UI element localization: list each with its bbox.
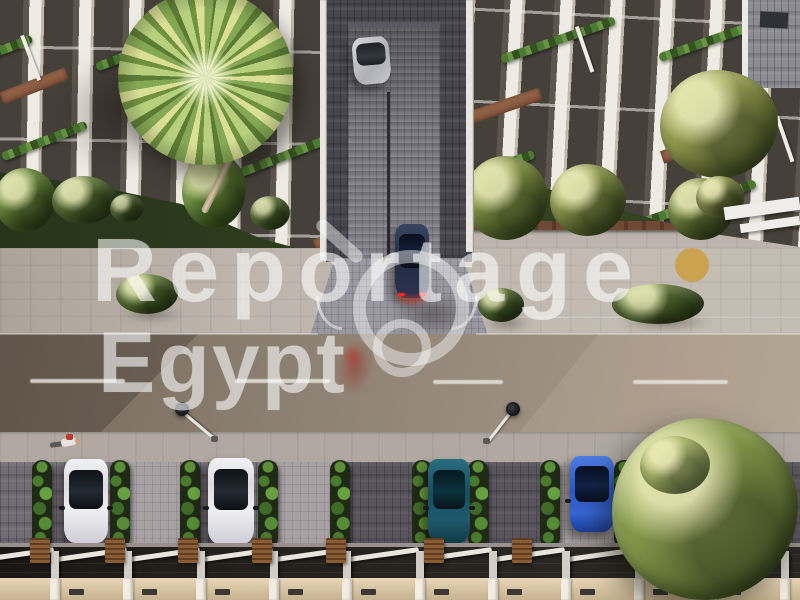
car-teal	[428, 459, 470, 543]
hedge-planter	[330, 460, 350, 548]
wall-pilaster	[50, 578, 60, 600]
car-glass	[214, 469, 249, 509]
bench	[252, 538, 272, 563]
car-silver	[351, 35, 392, 85]
wall-pilaster	[780, 578, 790, 600]
car-blue	[570, 456, 614, 532]
person-head	[75, 438, 81, 444]
wall-plate	[580, 589, 595, 595]
car-mirror	[565, 499, 571, 503]
wall-pilaster	[123, 578, 133, 600]
road-edge-line	[476, 333, 800, 335]
rooftop-unit	[760, 11, 789, 28]
street-lamp-base	[483, 438, 490, 444]
watermark-period-dot	[675, 248, 709, 282]
hedge-planter	[540, 460, 560, 548]
wall-pilaster	[561, 578, 571, 600]
hedge-planter	[110, 460, 130, 548]
wall-plate	[69, 589, 84, 595]
lane-dash	[633, 380, 728, 384]
parking-spot-empty	[276, 462, 332, 546]
terracotta-terrace	[468, 87, 543, 124]
car-mirror	[253, 506, 259, 510]
garden-tree	[0, 168, 56, 232]
wall-plate	[434, 589, 449, 595]
street-lamp-head	[506, 402, 520, 416]
aerial-render-scene: Reportage Egypt	[0, 0, 800, 600]
hedge-planter	[32, 460, 52, 548]
bench	[30, 538, 50, 563]
big-tree	[612, 418, 798, 600]
walkway-strip	[486, 462, 540, 546]
car-mirror	[469, 506, 475, 510]
wall-plate	[142, 589, 157, 595]
parking-spot-empty	[128, 462, 180, 546]
wall-plate	[288, 589, 303, 595]
driveway-top-lip	[348, 22, 440, 28]
wall-plate	[215, 589, 230, 595]
balcony-plants	[500, 16, 616, 64]
wall-pilaster	[342, 578, 352, 600]
car-mirror	[59, 506, 65, 510]
wall-pilaster	[196, 578, 206, 600]
watermark-logo-ring-inner	[373, 319, 431, 377]
car-mirror	[423, 506, 429, 510]
bench	[512, 538, 532, 563]
wall-pilaster	[634, 578, 644, 600]
bench	[424, 538, 444, 563]
garden-bush	[110, 194, 144, 222]
car-white-2	[208, 458, 254, 544]
car-mirror	[203, 506, 209, 510]
car-mirror	[107, 506, 113, 510]
wall-pilaster	[269, 578, 279, 600]
car-glass	[69, 470, 102, 509]
hedge-planter	[258, 460, 278, 548]
olive-tree	[660, 70, 778, 178]
wall-pilaster	[415, 578, 425, 600]
car-glass	[433, 470, 465, 509]
big-tree-highlight	[640, 436, 710, 494]
wall-plate	[361, 589, 376, 595]
hedge-planter	[468, 460, 488, 548]
bench	[105, 538, 125, 563]
lane-dash	[433, 380, 503, 384]
driveway-curb-right	[466, 0, 474, 252]
car-glass	[575, 466, 608, 502]
wall-plate	[507, 589, 522, 595]
bench	[178, 538, 198, 563]
watermark-line2: Egypt	[98, 314, 347, 413]
wall-pilaster	[488, 578, 498, 600]
walkway-strip	[347, 462, 413, 546]
street-lamp-base	[211, 436, 218, 442]
bench	[326, 538, 346, 563]
hedge-planter	[180, 460, 200, 548]
car-white-1	[64, 459, 108, 543]
car-silver-glass	[356, 42, 386, 66]
person-bag	[66, 434, 73, 440]
